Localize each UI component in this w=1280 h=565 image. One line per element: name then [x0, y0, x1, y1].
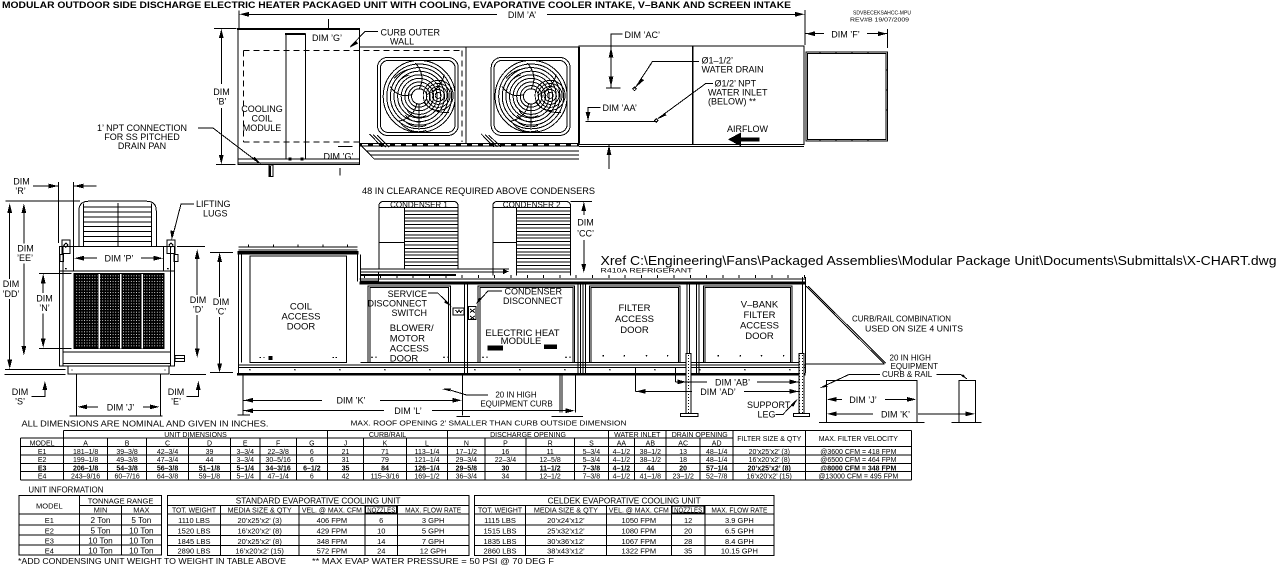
svg-text:47–3/4: 47–3/4 — [157, 457, 179, 464]
svg-text:’CC’: ’CC’ — [577, 229, 594, 239]
svg-text:11–1/2: 11–1/2 — [540, 465, 561, 472]
svg-text:AA: AA — [617, 440, 627, 447]
svg-text:49–3/8: 49–3/8 — [116, 457, 138, 464]
svg-text:16’x20’x2’ (15): 16’x20’x2’ (15) — [235, 546, 284, 555]
svg-text:5 Ton: 5 Ton — [131, 516, 151, 525]
svg-text:429 FPM: 429 FPM — [317, 527, 347, 536]
svg-text:DIM ’G’: DIM ’G’ — [312, 33, 342, 43]
svg-text:4–1/2: 4–1/2 — [613, 449, 631, 456]
svg-text:199–1/8: 199–1/8 — [73, 457, 98, 464]
svg-text:6: 6 — [310, 457, 314, 464]
svg-text:EQUIPMENT CURB: EQUIPMENT CURB — [480, 400, 552, 409]
svg-text:AIRFLOW: AIRFLOW — [727, 124, 769, 134]
svg-text:USED ON SIZE 4 UNITS: USED ON SIZE 4 UNITS — [865, 324, 963, 333]
svg-text:51–1/8: 51–1/8 — [199, 465, 221, 472]
svg-text:’E’: ’E’ — [171, 397, 181, 407]
svg-text:R410A REFRIGERANT: R410A REFRIGERANT — [601, 267, 693, 274]
svg-text:@13000 CFM = 495 FPM: @13000 CFM = 495 FPM — [818, 474, 898, 481]
svg-text:121–1/4: 121–1/4 — [414, 457, 439, 464]
svg-text:UNIT INFORMATION: UNIT INFORMATION — [28, 486, 103, 495]
svg-text:29–5/8: 29–5/8 — [456, 465, 478, 472]
svg-text:’D’: ’D’ — [193, 305, 204, 315]
svg-text:17–1/2: 17–1/2 — [456, 449, 478, 456]
svg-text:6: 6 — [310, 449, 314, 456]
svg-text:16’x20’x2’ (8): 16’x20’x2’ (8) — [749, 457, 790, 464]
svg-text:BLOWER/MOTORACCESSDOOR: BLOWER/MOTORACCESSDOOR — [390, 323, 434, 364]
svg-text:E3: E3 — [45, 537, 54, 546]
svg-text:47–1/4: 47–1/4 — [267, 474, 289, 481]
svg-text:7 GPH: 7 GPH — [422, 537, 445, 546]
svg-text:D: D — [207, 440, 212, 447]
svg-text:’C’: ’C’ — [216, 307, 227, 317]
svg-text:’S’: ’S’ — [15, 397, 25, 407]
svg-text:DIM ’P’: DIM ’P’ — [105, 254, 134, 264]
svg-text:FILTERACCESSDOOR: FILTERACCESSDOOR — [615, 303, 654, 336]
svg-text:5–3/4: 5–3/4 — [583, 457, 601, 464]
svg-text:E2: E2 — [38, 457, 47, 464]
svg-text:J: J — [344, 440, 348, 447]
svg-text:31: 31 — [342, 457, 350, 464]
svg-text:113–1/4: 113–1/4 — [415, 449, 440, 456]
svg-text:AB: AB — [646, 440, 656, 447]
svg-text:20’x24’x12’: 20’x24’x12’ — [547, 516, 585, 525]
svg-text:1845 LBS: 1845 LBS — [178, 537, 211, 546]
svg-text:38–1/2: 38–1/2 — [640, 449, 662, 456]
svg-text:TONNAGE RANGE: TONNAGE RANGE — [88, 497, 154, 506]
svg-text:DIM ’K’: DIM ’K’ — [881, 409, 910, 419]
svg-text:MODEL: MODEL — [30, 440, 55, 447]
svg-text:16’x20’x2’ (15): 16’x20’x2’ (15) — [747, 474, 792, 481]
svg-text:1835 LBS: 1835 LBS — [484, 537, 517, 546]
svg-text:@8000 CFM = 348 FPM: @8000 CFM = 348 FPM — [820, 465, 896, 472]
svg-text:48–1/4: 48–1/4 — [706, 449, 728, 456]
svg-text:DIM: DIM — [3, 279, 20, 289]
svg-text:CURB/RAIL: CURB/RAIL — [369, 432, 406, 439]
svg-text:COOLINGCOILMODULE: COOLINGCOILMODULE — [241, 104, 283, 133]
svg-text:406 FPM: 406 FPM — [317, 516, 347, 525]
svg-text:10: 10 — [377, 527, 385, 536]
svg-text:5–1/4: 5–1/4 — [236, 474, 254, 481]
svg-text:16: 16 — [502, 449, 510, 456]
svg-text:14: 14 — [377, 537, 385, 546]
svg-text:MAX. FLOW RATE: MAX. FLOW RATE — [405, 505, 461, 514]
svg-text:115–3/16: 115–3/16 — [371, 474, 400, 481]
svg-text:52–7/8: 52–7/8 — [706, 474, 728, 481]
svg-text:48–1/4: 48–1/4 — [706, 457, 728, 464]
svg-text:MODULE: MODULE — [501, 336, 542, 347]
svg-text:COILACCESSDOOR: COILACCESSDOOR — [281, 302, 320, 333]
svg-text:3 GPH: 3 GPH — [422, 516, 445, 525]
svg-text:7–3/8: 7–3/8 — [583, 474, 601, 481]
svg-text:38’x43’x12’: 38’x43’x12’ — [547, 546, 585, 555]
svg-text:12–1/2: 12–1/2 — [539, 474, 561, 481]
svg-text:K: K — [383, 440, 388, 447]
svg-text:@3600 CFM = 418 FPM: @3600 CFM = 418 FPM — [820, 449, 896, 456]
svg-text:UNIT DIMENSIONS: UNIT DIMENSIONS — [164, 432, 227, 439]
svg-text:’EE’: ’EE’ — [17, 253, 33, 263]
svg-text:169–1/2: 169–1/2 — [414, 474, 439, 481]
svg-text:’N’: ’N’ — [39, 303, 50, 313]
svg-text:42: 42 — [342, 474, 350, 481]
svg-text:SUPPORT: SUPPORT — [747, 400, 791, 410]
svg-text:DIM ’G’: DIM ’G’ — [324, 152, 354, 162]
svg-text:E1: E1 — [38, 449, 47, 456]
svg-text:10 Ton: 10 Ton — [129, 546, 154, 555]
svg-text:5–1/4: 5–1/4 — [236, 465, 254, 472]
svg-text:G: G — [309, 440, 314, 447]
svg-text:DIM ’J’: DIM ’J’ — [107, 402, 135, 412]
svg-text:’B’: ’B’ — [216, 97, 226, 107]
svg-text:12 GPH: 12 GPH — [420, 546, 447, 555]
svg-text:36–3/4: 36–3/4 — [456, 474, 478, 481]
svg-text:E4: E4 — [38, 474, 47, 481]
svg-text:WATER INLET: WATER INLET — [614, 432, 661, 439]
svg-text:56–3/8: 56–3/8 — [157, 465, 179, 472]
svg-text:DIM ’K’: DIM ’K’ — [337, 396, 366, 406]
svg-text:13: 13 — [679, 449, 687, 456]
svg-text:CURB & RAIL: CURB & RAIL — [882, 370, 933, 379]
svg-text:20’x25’x2’ (8): 20’x25’x2’ (8) — [237, 537, 282, 546]
svg-text:DIM ’AA’: DIM ’AA’ — [603, 103, 637, 113]
svg-text:84: 84 — [381, 465, 389, 472]
svg-text:R: R — [548, 440, 553, 447]
svg-text:4–1/2: 4–1/2 — [613, 474, 631, 481]
svg-text:20: 20 — [679, 465, 687, 472]
svg-text:DIM: DIM — [190, 295, 207, 305]
svg-text:572 FPM: 572 FPM — [317, 546, 347, 555]
svg-text:DIM: DIM — [12, 387, 29, 397]
svg-text:DIM ’AD’: DIM ’AD’ — [700, 387, 736, 397]
svg-text:10 Ton: 10 Ton — [129, 537, 154, 546]
svg-text:DIM ’AB’: DIM ’AB’ — [715, 377, 750, 387]
svg-text:MODULAR OUTDOOR SIDE DISCHARGE: MODULAR OUTDOOR SIDE DISCHARGE ELECTRIC … — [2, 0, 791, 11]
svg-text:3.9 GPH: 3.9 GPH — [725, 516, 754, 525]
svg-text:44: 44 — [206, 457, 214, 464]
svg-text:60–7/16: 60–7/16 — [114, 474, 139, 481]
svg-text:29–3/4: 29–3/4 — [456, 457, 478, 464]
svg-text:10 Ton: 10 Ton — [88, 546, 113, 555]
svg-text:SDVBECEKSAHCC-MPU: SDVBECEKSAHCC-MPU — [853, 11, 911, 17]
svg-text:DIM ’J’: DIM ’J’ — [849, 395, 877, 405]
svg-text:20’x25’x2’ (3): 20’x25’x2’ (3) — [749, 449, 790, 456]
svg-text:MAX: MAX — [133, 506, 149, 515]
svg-text:39: 39 — [206, 449, 214, 456]
svg-text:MODEL: MODEL — [36, 502, 63, 511]
svg-text:1115 LBS: 1115 LBS — [484, 516, 516, 525]
svg-text:F: F — [276, 440, 280, 447]
svg-text:DIM: DIM — [17, 244, 34, 254]
svg-text:TOT. WEIGHT: TOT. WEIGHT — [478, 505, 523, 514]
svg-text:CELDEK EVAPORATIVE COOLING UNI: CELDEK EVAPORATIVE COOLING UNIT — [548, 497, 701, 506]
svg-text:DISCHARGE OPENING: DISCHARGE OPENING — [490, 432, 566, 439]
svg-text:5 Ton: 5 Ton — [91, 526, 111, 535]
svg-text:54–3/8: 54–3/8 — [116, 465, 138, 472]
svg-text:DIM: DIM — [13, 177, 30, 187]
svg-text:24: 24 — [377, 546, 385, 555]
svg-text:64–3/8: 64–3/8 — [157, 474, 179, 481]
svg-text:DIM: DIM — [577, 218, 594, 228]
svg-text:2860 LBS: 2860 LBS — [484, 546, 517, 555]
svg-text:59–1/8: 59–1/8 — [199, 474, 221, 481]
svg-text:** MAX EVAP WATER PRESSURE = 5: ** MAX EVAP WATER PRESSURE = 50 PSI @ 70… — [312, 557, 554, 565]
svg-text:1110 LBS: 1110 LBS — [178, 516, 210, 525]
svg-text:DIM: DIM — [168, 387, 185, 397]
svg-text:WALL: WALL — [390, 37, 414, 47]
svg-text:MEDIA SIZE & QTY: MEDIA SIZE & QTY — [228, 505, 292, 514]
svg-text:ALL DIMENSIONS ARE NOMINAL AND: ALL DIMENSIONS ARE NOMINAL AND GIVEN IN … — [22, 419, 269, 428]
svg-text:DIM: DIM — [36, 294, 53, 304]
svg-text:35: 35 — [342, 465, 350, 472]
svg-text:30–5/16: 30–5/16 — [265, 457, 290, 464]
svg-text:DIM: DIM — [213, 87, 230, 97]
svg-text:79: 79 — [381, 457, 389, 464]
svg-text:126–1/4: 126–1/4 — [414, 465, 439, 472]
svg-text:AC: AC — [678, 440, 688, 447]
svg-text:38–1/2: 38–1/2 — [640, 457, 662, 464]
svg-text:20: 20 — [684, 527, 692, 536]
svg-text:71: 71 — [381, 449, 389, 456]
svg-text:1515 LBS: 1515 LBS — [484, 527, 517, 536]
svg-text:181–1/8: 181–1/8 — [73, 449, 98, 456]
svg-text:AD: AD — [712, 440, 722, 447]
svg-text:WATER DRAIN: WATER DRAIN — [702, 65, 764, 75]
svg-text:E2: E2 — [45, 526, 54, 535]
svg-text:42–3/4: 42–3/4 — [157, 449, 179, 456]
svg-text:8.4 GPH: 8.4 GPH — [725, 537, 754, 546]
svg-text:MAX. FILTER VELOCITY: MAX. FILTER VELOCITY — [819, 436, 899, 443]
svg-text:DIM: DIM — [213, 297, 230, 307]
svg-text:DIM ’AC’: DIM ’AC’ — [625, 30, 661, 40]
svg-text:P: P — [503, 440, 508, 447]
svg-text:LUGS: LUGS — [203, 209, 228, 219]
svg-text:2 Ton: 2 Ton — [91, 516, 111, 525]
svg-text:LIFTING: LIFTING — [196, 199, 231, 209]
svg-text:20’x25’x2’ (8): 20’x25’x2’ (8) — [748, 465, 791, 472]
svg-text:’DD’: ’DD’ — [3, 289, 20, 299]
svg-text:57–1/4: 57–1/4 — [706, 465, 728, 472]
svg-text:CONDENSER 2: CONDENSER 2 — [503, 200, 561, 209]
svg-text:3–3/4: 3–3/4 — [236, 449, 254, 456]
svg-text:STANDARD EVAPORATIVE COOLING U: STANDARD EVAPORATIVE COOLING UNIT — [236, 497, 401, 506]
svg-text:’R’: ’R’ — [15, 186, 26, 196]
svg-text:LEG: LEG — [758, 410, 776, 420]
svg-text:25’x32’x12’: 25’x32’x12’ — [547, 527, 585, 536]
svg-text:206–1/8: 206–1/8 — [73, 465, 98, 472]
svg-text:243–9/16: 243–9/16 — [71, 474, 100, 481]
svg-text:1’ NPT CONNECTIONFOR SS PITCHE: 1’ NPT CONNECTIONFOR SS PITCHEDDRAIN PAN — [97, 123, 187, 151]
svg-text:6.5 GPH: 6.5 GPH — [725, 527, 754, 536]
svg-text:5–3/4: 5–3/4 — [583, 449, 601, 456]
svg-text:CURB/RAIL COMBINATION: CURB/RAIL COMBINATION — [852, 315, 951, 324]
svg-text:1080 FPM: 1080 FPM — [621, 527, 656, 536]
svg-text:20 IN HIGH: 20 IN HIGH — [495, 391, 537, 400]
svg-text:E4: E4 — [45, 546, 54, 555]
svg-text:10 Ton: 10 Ton — [129, 526, 154, 535]
svg-text:1067 FPM: 1067 FPM — [621, 537, 656, 546]
svg-text:4–1/2: 4–1/2 — [613, 465, 631, 472]
svg-text:FILTER SIZE & QTY: FILTER SIZE & QTY — [737, 436, 801, 443]
svg-text:L: L — [425, 440, 429, 447]
svg-text:21: 21 — [342, 449, 350, 456]
svg-text:30’x36’x12’: 30’x36’x12’ — [547, 537, 585, 546]
svg-text:12: 12 — [684, 516, 692, 525]
svg-text:22–3/8: 22–3/8 — [267, 449, 289, 456]
svg-text:MIN: MIN — [94, 506, 108, 515]
svg-text:NOZZLES: NOZZLES — [367, 505, 395, 514]
svg-text:DIM ’A’: DIM ’A’ — [508, 10, 536, 20]
svg-text:6–1/2: 6–1/2 — [303, 465, 321, 472]
svg-text:DISCONNECT: DISCONNECT — [503, 296, 563, 306]
svg-text:1322 FPM: 1322 FPM — [621, 546, 656, 555]
svg-text:A: A — [83, 440, 88, 447]
svg-text:DIM ’F’: DIM ’F’ — [831, 29, 860, 39]
svg-text:SERVICEDISCONNECTSWITCH: SERVICEDISCONNECTSWITCH — [367, 289, 427, 318]
svg-text:@6500 CFM = 464 FPM: @6500 CFM = 464 FPM — [820, 457, 896, 464]
svg-text:34–3/16: 34–3/16 — [265, 465, 290, 472]
svg-text:VEL. @ MAX. CFM: VEL. @ MAX. CFM — [302, 505, 362, 514]
svg-text:11: 11 — [546, 449, 553, 456]
svg-text:N: N — [464, 440, 469, 447]
svg-text:MAX. FLOW RATE: MAX. FLOW RATE — [711, 505, 767, 514]
svg-text:28: 28 — [684, 537, 692, 546]
svg-text:TOT. WEIGHT: TOT. WEIGHT — [172, 505, 217, 514]
svg-text:E: E — [243, 440, 248, 447]
svg-text:2890 LBS: 2890 LBS — [178, 546, 211, 555]
svg-text:B: B — [125, 440, 130, 447]
svg-text:*ADD CONDENSING UNIT WEIGHT TO: *ADD CONDENSING UNIT WEIGHT TO WEIGHT IN… — [18, 557, 286, 565]
svg-text:41–1/8: 41–1/8 — [640, 474, 662, 481]
svg-text:CONDENSER 1: CONDENSER 1 — [390, 200, 448, 209]
svg-text:22–3/4: 22–3/4 — [495, 457, 517, 464]
svg-text:NOZZLES: NOZZLES — [674, 505, 702, 514]
svg-text:5 GPH: 5 GPH — [422, 527, 445, 536]
svg-text:1520 LBS: 1520 LBS — [178, 527, 211, 536]
svg-text:(BELOW) **: (BELOW) ** — [708, 96, 757, 106]
svg-text:Xref C:\Engineering\Fans\Packa: Xref C:\Engineering\Fans\Packaged Assemb… — [601, 253, 1277, 268]
svg-text:20’x25’x2’ (3): 20’x25’x2’ (3) — [237, 516, 282, 525]
svg-text:10.15 GPH: 10.15 GPH — [721, 546, 758, 555]
svg-text:30: 30 — [502, 465, 510, 472]
svg-text:REV#B 19/07/2009: REV#B 19/07/2009 — [850, 17, 909, 23]
svg-text:39–3/8: 39–3/8 — [116, 449, 138, 456]
svg-text:DRAIN OPENING: DRAIN OPENING — [672, 432, 728, 439]
svg-text:DIM ’L’: DIM ’L’ — [394, 406, 422, 416]
svg-text:V–BANKFILTERACCESSDOOR: V–BANKFILTERACCESSDOOR — [740, 299, 779, 342]
svg-text:3–3/4: 3–3/4 — [236, 457, 254, 464]
svg-text:E1: E1 — [45, 516, 54, 525]
svg-text:16’x20’x2’ (8): 16’x20’x2’ (8) — [237, 527, 282, 536]
svg-text:4–1/2: 4–1/2 — [613, 457, 631, 464]
svg-text:23–1/2: 23–1/2 — [672, 474, 694, 481]
svg-text:48 IN CLEARANCE REQUIRED ABOVE: 48 IN CLEARANCE REQUIRED ABOVE CONDENSER… — [362, 186, 595, 196]
svg-text:MAX. ROOF OPENING 2’ SMALLER T: MAX. ROOF OPENING 2’ SMALLER THAN CURB O… — [351, 420, 627, 427]
svg-text:6: 6 — [379, 516, 383, 525]
svg-text:MEDIA SIZE & QTY: MEDIA SIZE & QTY — [534, 505, 598, 514]
svg-text:12–5/8: 12–5/8 — [539, 457, 561, 464]
svg-text:348 FPM: 348 FPM — [317, 537, 347, 546]
svg-text:35: 35 — [684, 546, 692, 555]
svg-text:E3: E3 — [38, 465, 47, 472]
svg-text:C: C — [165, 440, 170, 447]
svg-text:18: 18 — [679, 457, 687, 464]
svg-text:44: 44 — [646, 465, 654, 472]
svg-text:1050 FPM: 1050 FPM — [621, 516, 656, 525]
svg-text:S: S — [589, 440, 594, 447]
svg-text:VEL. @ MAX. CFM: VEL. @ MAX. CFM — [609, 505, 669, 514]
svg-text:7–3/8: 7–3/8 — [583, 465, 601, 472]
svg-text:6: 6 — [310, 474, 314, 481]
svg-text:10 Ton: 10 Ton — [88, 537, 113, 546]
svg-text:34: 34 — [502, 474, 510, 481]
